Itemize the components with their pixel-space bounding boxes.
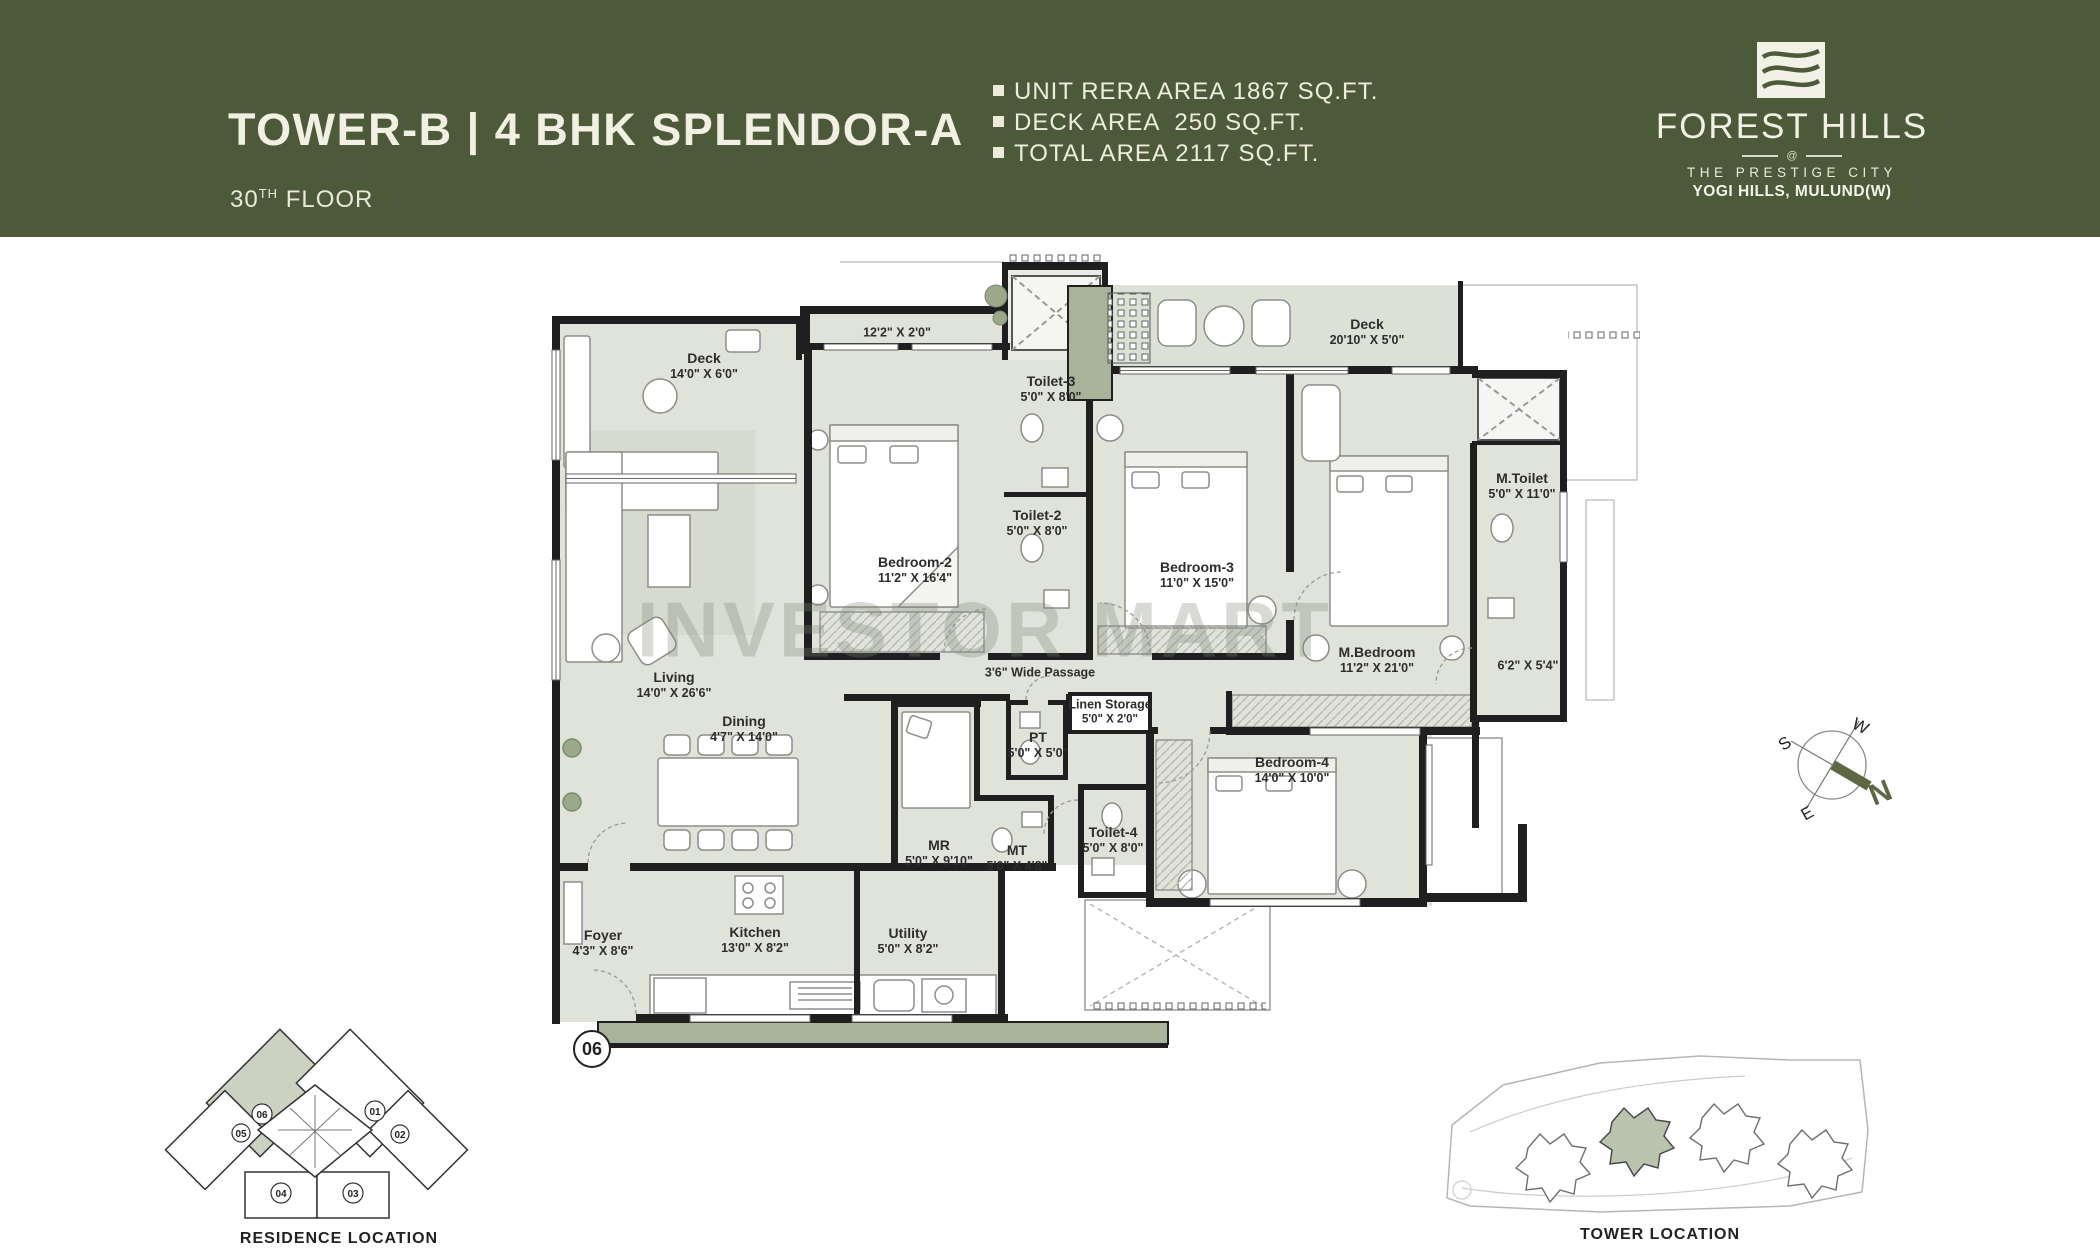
room-label-deck-left: Deck14'0" X 6'0" (670, 350, 738, 382)
room-name: 3'6" Wide Passage (985, 665, 1095, 680)
watermark: INVESTOR MART (637, 585, 1333, 676)
room-dims: 5'0" X 4'8" (987, 859, 1048, 874)
compass-east: E (1798, 802, 1817, 824)
room-name: Bedroom-2 (878, 554, 952, 571)
unit-number-03: 03 (347, 1189, 359, 1200)
room-label-toilet2: Toilet-25'0" X 8'0" (1007, 507, 1068, 539)
room-name: Foyer (573, 927, 634, 944)
compass-west: W (1849, 714, 1872, 738)
room-dims: 12'2" X 2'0" (863, 325, 931, 340)
room-dims: 20'10" X 5'0" (1330, 333, 1405, 348)
room-dims: 4'3" X 8'6" (573, 944, 634, 959)
room-dims: 4'7" X 14'0" (710, 730, 778, 745)
room-name: M.Bedroom (1339, 644, 1416, 661)
room-label-bedroom4: Bedroom-414'0" X 10'0" (1255, 754, 1330, 786)
unit-number-02: 02 (394, 1130, 406, 1141)
room-name: Deck (1330, 316, 1405, 333)
room-label-linen: Linen Storage5'0" X 2'0" (1068, 697, 1151, 726)
room-name: MR (905, 837, 973, 854)
room-label-toilet4: Toilet-45'0" X 8'0" (1083, 824, 1144, 856)
room-dims: 11'0" X 15'0" (1160, 576, 1234, 591)
room-name: Linen Storage (1068, 697, 1151, 712)
room-label-passage: 3'6" Wide Passage (985, 665, 1095, 680)
unit-number-badge: 06 (573, 1030, 611, 1068)
compass-north: N (1864, 774, 1896, 813)
room-name: Utility (878, 925, 939, 942)
room-label-dining: Dining4'7" X 14'0" (710, 713, 778, 745)
room-label-lobby: 6'2" X 5'4" (1498, 658, 1559, 673)
room-name: Dining (710, 713, 778, 730)
room-name: Toilet-2 (1007, 507, 1068, 524)
room-label-pt: PT5'0" X 5'0" (1008, 729, 1069, 761)
room-label-kitchen: Kitchen13'0" X 8'2" (721, 924, 789, 956)
room-dims: 5'0" X 5'0" (1008, 746, 1069, 761)
room-label-mr: MR5'0" X 9'10" (905, 837, 973, 869)
residence-location-title: RESIDENCE LOCATION (240, 1230, 438, 1248)
room-label-utility: Utility5'0" X 8'2" (878, 925, 939, 957)
room-dims: 5'0" X 9'10" (905, 854, 973, 869)
room-dims: 5'0" X 8'0" (1021, 390, 1082, 405)
room-label-living: Living14'0" X 26'6" (637, 669, 712, 701)
unit-number-05: 05 (235, 1129, 247, 1140)
room-name: Toilet-4 (1083, 824, 1144, 841)
room-name: M.Toilet (1488, 470, 1555, 487)
room-name: Living (637, 669, 712, 686)
room-name: Bedroom-3 (1160, 559, 1234, 576)
unit-number-06: 06 (256, 1110, 268, 1121)
compass-icon: W S E N (1775, 714, 1897, 824)
room-dims: 11'2" X 21'0" (1339, 661, 1416, 676)
tower-location-title: TOWER LOCATION (1580, 1226, 1740, 1244)
unit-number-01: 01 (369, 1107, 381, 1118)
room-dims: 14'0" X 10'0" (1255, 771, 1330, 786)
room-dims: 14'0" X 6'0" (670, 367, 738, 382)
room-label-mbedroom: M.Bedroom11'2" X 21'0" (1339, 644, 1416, 676)
room-label-bedroom3: Bedroom-311'0" X 15'0" (1160, 559, 1234, 591)
room-dims: 5'0" X 8'2" (878, 942, 939, 957)
room-name: Kitchen (721, 924, 789, 941)
room-label-mtoilet: M.Toilet5'0" X 11'0" (1488, 470, 1555, 502)
room-name: PT (1008, 729, 1069, 746)
residence-location-diagram: 06 05 01 02 04 03 (166, 1029, 468, 1218)
room-dims: 5'0" X 11'0" (1488, 487, 1555, 502)
room-name: Bedroom-4 (1255, 754, 1330, 771)
brochure-page: TOWER-B | 4 BHK SPLENDOR-A 30TH FLOOR UN… (0, 0, 2100, 1260)
room-label-mt: MT5'0" X 4'8" (987, 842, 1048, 874)
room-dims: 5'0" X 8'0" (1007, 524, 1068, 539)
room-name: Toilet-3 (1021, 373, 1082, 390)
room-label-bedroom2: Bedroom-211'2" X 16'4" (878, 554, 952, 586)
room-label-toilet3: Toilet-35'0" X 8'0" (1021, 373, 1082, 405)
room-dims: 5'0" X 8'0" (1083, 841, 1144, 856)
room-name: Deck (670, 350, 738, 367)
room-name: MT (987, 842, 1048, 859)
compass-south: S (1775, 732, 1795, 754)
room-dims: 5'0" X 2'0" (1068, 713, 1151, 727)
room-dims: 11'2" X 16'4" (878, 571, 952, 586)
room-label-foyer: Foyer4'3" X 8'6" (573, 927, 634, 959)
unit-number-04: 04 (275, 1189, 287, 1200)
room-label-balcony-strip: 12'2" X 2'0" (863, 325, 931, 340)
room-dims: 13'0" X 8'2" (721, 941, 789, 956)
room-label-deck-top: Deck20'10" X 5'0" (1330, 316, 1405, 348)
room-dims: 14'0" X 26'6" (637, 686, 712, 701)
tower-location-diagram (1447, 1056, 1868, 1212)
room-dims: 6'2" X 5'4" (1498, 658, 1559, 673)
